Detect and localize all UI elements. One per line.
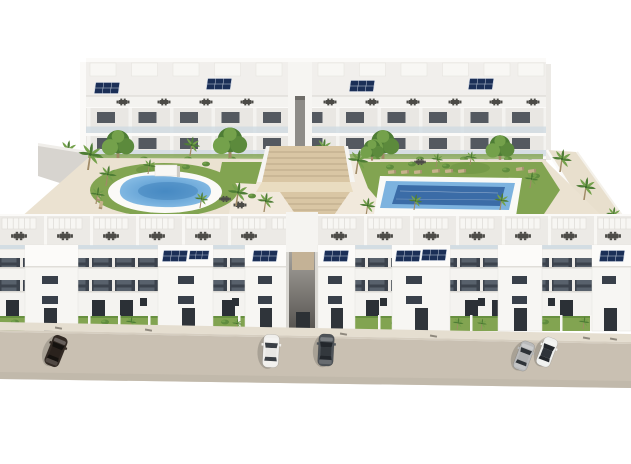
front-right-upper-window-band (318, 258, 631, 267)
solar-panel-cluster (599, 251, 625, 262)
solar-panel-cluster (252, 251, 278, 262)
front-right-lower-window-band (318, 280, 631, 291)
front-right-patio-gardens (318, 315, 631, 331)
solar-panel-cluster (395, 251, 421, 262)
architectural-render (0, 0, 631, 464)
front-right-block (318, 214, 631, 331)
pool-bar (155, 165, 180, 177)
solar-panel-cluster (323, 251, 349, 262)
front-right-roof-pergolas (322, 218, 631, 229)
rear-central-entrance (288, 62, 312, 160)
central-passage (286, 212, 318, 331)
front-left-block (0, 214, 306, 331)
render-canvas (0, 0, 631, 464)
left-pool (108, 171, 222, 213)
solar-panel-cluster (162, 251, 188, 262)
